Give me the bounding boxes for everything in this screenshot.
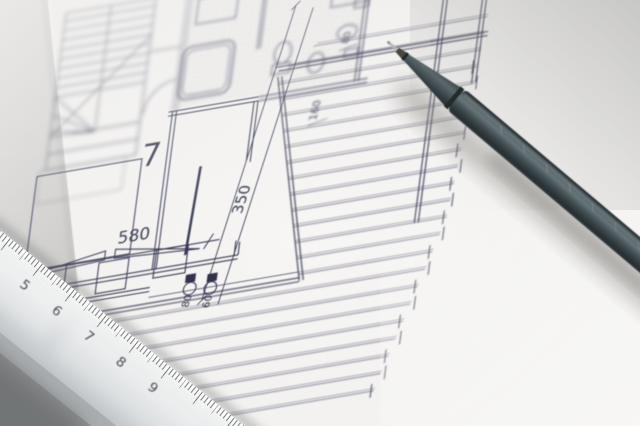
soft-focus-veil — [0, 0, 430, 310]
photo-canvas: 80 160 — [0, 0, 640, 426]
photo-architecture-plan: 80 160 — [0, 0, 640, 426]
